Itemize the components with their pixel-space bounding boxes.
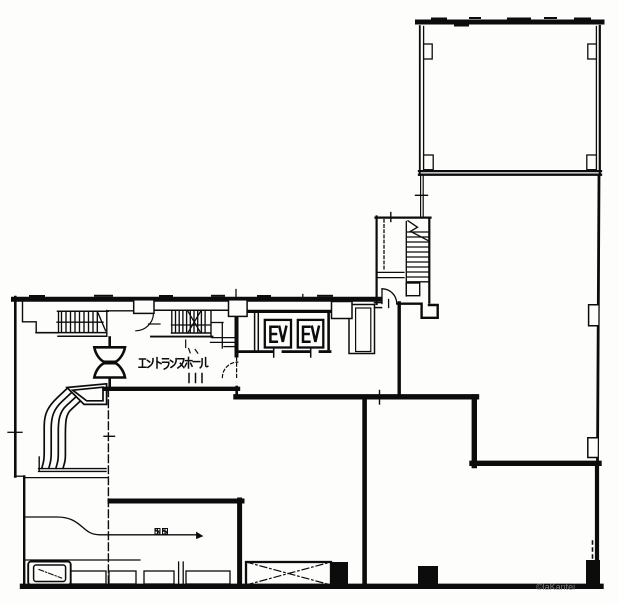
svg-text:©laKantei: ©laKantei — [536, 582, 575, 592]
